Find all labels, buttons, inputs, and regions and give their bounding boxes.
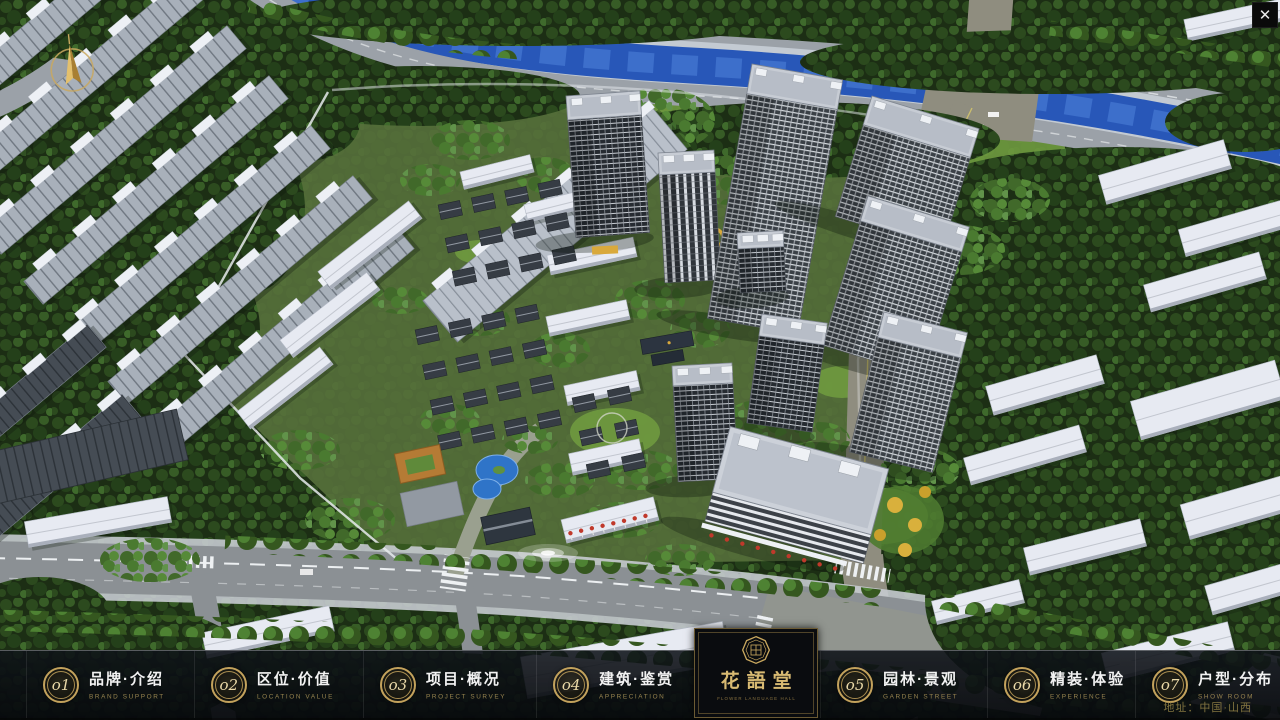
menu-item-6[interactable]: o6精装·体验EXPERIENCE: [987, 651, 1135, 718]
menu-item-label-zh: 区位·价值: [257, 668, 353, 689]
menu-item-number: o6: [1013, 676, 1032, 694]
menu-item-1-badge: o1: [43, 667, 79, 703]
menu-item-label-en: APPRECIATION: [599, 693, 665, 700]
compass-icon: [36, 29, 107, 107]
shuttle-bus: [592, 245, 618, 254]
menu-item-number: o5: [846, 676, 865, 694]
brand-logo-panel[interactable]: 花語堂 FLOWER LANGUAGE HALL: [694, 628, 818, 718]
menu-item-5-badge: o5: [837, 667, 873, 703]
menu-item-2-badge: o2: [211, 667, 247, 703]
menu-item-label-zh: 项目·概况: [426, 668, 526, 689]
menu-item-5[interactable]: o5园林·景观GARDEN STREET: [820, 651, 987, 718]
menu-item-number: o4: [562, 676, 581, 694]
menu-item-label-en: PROJECT SURVEY: [426, 693, 506, 700]
project-address: 地址：中国·山西: [1163, 699, 1252, 715]
menu-item-1[interactable]: o1品牌·介绍BRAND SUPPORT: [26, 651, 194, 718]
menu-item-4-badge: o4: [553, 667, 589, 703]
menu-item-label-zh: 户型·分布: [1198, 668, 1273, 689]
aerial-masterplan-render[interactable]: [0, 0, 1280, 720]
menu-item-label-en: EXPERIENCE: [1050, 693, 1110, 700]
menu-item-number: o2: [219, 676, 238, 694]
menu-item-7-badge: o7: [1152, 667, 1188, 703]
menu-item-label-zh: 园林·景观: [883, 668, 977, 689]
menu-item-number: o3: [389, 676, 408, 694]
menu-item-label-en: GARDEN STREET: [883, 693, 958, 700]
menu-item-4[interactable]: o4建筑·鉴赏APPRECIATION: [536, 651, 692, 718]
sandtable-viewer: ✕ o1品牌·介绍BRAND SUPPORTo2区位·价值LOCATION VA…: [0, 0, 1280, 720]
menu-item-3-badge: o3: [380, 667, 416, 703]
menu-item-label-en: LOCATION VALUE: [257, 693, 334, 700]
brand-title: 花語堂: [714, 666, 799, 693]
menu-item-label-zh: 精装·体验: [1050, 668, 1125, 689]
menu-item-3[interactable]: o3项目·概况PROJECT SURVEY: [363, 651, 536, 718]
close-button[interactable]: ✕: [1252, 2, 1278, 28]
menu-item-label-en: BRAND SUPPORT: [89, 693, 165, 700]
menu-item-number: o1: [52, 676, 71, 694]
bottom-navbar: o1品牌·介绍BRAND SUPPORTo2区位·价值LOCATION VALU…: [0, 650, 1280, 720]
menu-item-number: o7: [1161, 676, 1180, 694]
brand-subtitle: FLOWER LANGUAGE HALL: [717, 696, 796, 701]
octagon-seal-icon: [741, 635, 771, 665]
nav-group-left: o1品牌·介绍BRAND SUPPORTo2区位·价值LOCATION VALU…: [0, 651, 692, 718]
menu-item-2[interactable]: o2区位·价值LOCATION VALUE: [194, 651, 363, 718]
menu-item-label-zh: 建筑·鉴赏: [599, 668, 682, 689]
menu-item-label-zh: 品牌·介绍: [89, 668, 184, 689]
menu-item-6-badge: o6: [1004, 667, 1040, 703]
